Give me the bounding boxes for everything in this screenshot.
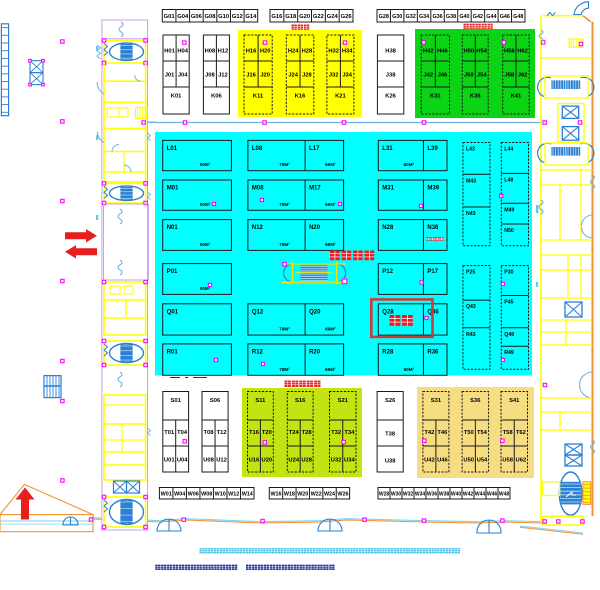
svg-text:W06: W06 (188, 491, 199, 497)
svg-text:R28: R28 (382, 349, 394, 355)
svg-text:W16: W16 (270, 491, 281, 497)
svg-text:M49: M49 (504, 207, 514, 213)
svg-text:H01: H01 (164, 49, 175, 55)
svg-text:U32: U32 (331, 458, 342, 464)
svg-text:G20: G20 (299, 14, 310, 20)
svg-text:T20: T20 (262, 430, 272, 436)
svg-text:M43: M43 (466, 178, 476, 184)
svg-text:J34: J34 (342, 73, 352, 79)
svg-text:U12: U12 (216, 458, 227, 464)
svg-text:N50: N50 (504, 228, 514, 234)
svg-text:T62: T62 (516, 430, 526, 436)
svg-text:L48: L48 (504, 177, 513, 183)
svg-text:K16: K16 (295, 94, 306, 100)
svg-text:T38: T38 (385, 432, 396, 438)
svg-text:J58: J58 (504, 73, 514, 79)
svg-text:U54: U54 (477, 458, 488, 464)
svg-text:W30: W30 (391, 491, 402, 497)
svg-text:W12: W12 (228, 491, 239, 497)
svg-text:L01: L01 (167, 146, 178, 152)
svg-text:U42: U42 (424, 458, 435, 464)
svg-text:U20: U20 (262, 458, 273, 464)
svg-text:J28: J28 (302, 73, 312, 79)
svg-text:G01: G01 (164, 14, 176, 20)
svg-text:P17: P17 (427, 269, 438, 275)
svg-text:H42: H42 (423, 49, 434, 55)
svg-text:W48: W48 (499, 491, 510, 497)
svg-text:P12: P12 (382, 269, 393, 275)
svg-text:T54: T54 (477, 430, 488, 436)
svg-text:G42: G42 (473, 14, 483, 20)
svg-text:H46: H46 (437, 49, 448, 55)
svg-text:H28: H28 (302, 49, 313, 55)
svg-text:L31: L31 (382, 146, 393, 152)
svg-text:G10: G10 (218, 14, 229, 20)
svg-text:W36: W36 (427, 491, 438, 497)
svg-text:U08: U08 (203, 458, 214, 464)
svg-text:N01: N01 (167, 225, 179, 231)
svg-text:T42: T42 (424, 430, 434, 436)
svg-text:J46: J46 (438, 73, 448, 79)
svg-text:T08: T08 (204, 430, 215, 436)
svg-text:G32: G32 (406, 14, 416, 20)
svg-text:90M²: 90M² (200, 162, 211, 167)
svg-text:T04: T04 (177, 430, 188, 436)
svg-text:S21: S21 (338, 398, 349, 404)
svg-text:R43: R43 (466, 332, 476, 338)
svg-text:H50: H50 (463, 49, 474, 55)
svg-text:J38: J38 (386, 73, 396, 79)
svg-text:U50: U50 (463, 458, 474, 464)
svg-text:T24: T24 (289, 430, 300, 436)
svg-text:H12: H12 (218, 49, 229, 55)
svg-text:U01: U01 (164, 458, 175, 464)
svg-text:G22: G22 (313, 14, 324, 20)
svg-text:W34: W34 (415, 491, 426, 497)
svg-text:J20: J20 (260, 73, 270, 79)
svg-text:78M²: 78M² (279, 327, 290, 332)
svg-text:S11: S11 (255, 398, 266, 404)
svg-text:W22: W22 (311, 491, 322, 497)
svg-text:H38: H38 (385, 49, 396, 55)
svg-text:L17: L17 (309, 146, 320, 152)
svg-text:J16: J16 (246, 73, 256, 79)
svg-text:78M²: 78M² (279, 367, 290, 372)
svg-text:J08: J08 (205, 73, 215, 79)
svg-text:J12: J12 (218, 73, 228, 79)
svg-text:U34: U34 (344, 458, 355, 464)
svg-text:J54: J54 (477, 73, 487, 79)
svg-text:R20: R20 (309, 349, 321, 355)
svg-text:G12: G12 (232, 14, 243, 20)
svg-text:J24: J24 (288, 73, 298, 79)
svg-text:W24: W24 (324, 491, 335, 497)
svg-text:M08: M08 (252, 186, 264, 192)
svg-text:W42: W42 (463, 491, 474, 497)
svg-text:R36: R36 (427, 349, 439, 355)
svg-text:G04: G04 (177, 14, 189, 20)
svg-text:K41: K41 (511, 94, 522, 100)
svg-text:G48: G48 (513, 14, 523, 20)
svg-text:L43: L43 (466, 147, 475, 153)
svg-text:J42: J42 (423, 73, 433, 79)
svg-text:J01: J01 (165, 73, 175, 79)
svg-text:R01: R01 (167, 349, 179, 355)
svg-text:H62: H62 (517, 49, 528, 55)
svg-text:T46: T46 (437, 430, 448, 436)
svg-text:K06: K06 (211, 94, 222, 100)
svg-text:W32: W32 (403, 491, 414, 497)
svg-text:K26: K26 (385, 94, 396, 100)
svg-text:78M²: 78M² (279, 242, 290, 247)
svg-text:78M²: 78M² (279, 162, 290, 167)
svg-text:U16: U16 (249, 458, 260, 464)
svg-text:W01: W01 (161, 491, 172, 497)
svg-text:Q28: Q28 (382, 309, 394, 315)
svg-text:N20: N20 (309, 225, 321, 231)
svg-text:N43: N43 (466, 211, 476, 217)
svg-text:G18: G18 (285, 14, 297, 20)
svg-text:W18: W18 (284, 491, 295, 497)
svg-text:J32: J32 (329, 73, 339, 79)
svg-text:H58: H58 (504, 49, 515, 55)
svg-text:S41: S41 (509, 398, 520, 404)
svg-text:W40: W40 (451, 491, 462, 497)
svg-text:G30: G30 (392, 14, 402, 20)
svg-text:W28: W28 (379, 491, 390, 497)
svg-text:N28: N28 (382, 225, 394, 231)
svg-text:H04: H04 (177, 49, 188, 55)
svg-text:W44: W44 (475, 491, 486, 497)
svg-text:Q49: Q49 (504, 332, 514, 338)
svg-text:W46: W46 (487, 491, 498, 497)
svg-text:Q01: Q01 (167, 309, 179, 315)
svg-text:M17: M17 (309, 186, 321, 192)
svg-text:68M²: 68M² (325, 242, 336, 247)
svg-text:G26: G26 (341, 14, 353, 20)
svg-text:K01: K01 (171, 94, 182, 100)
svg-text:P30: P30 (504, 270, 513, 276)
svg-text:S31: S31 (431, 398, 442, 404)
svg-text:S16: S16 (295, 398, 306, 404)
svg-text:N12: N12 (252, 225, 264, 231)
svg-text:69M²: 69M² (325, 202, 336, 207)
svg-text:W10: W10 (215, 491, 226, 497)
svg-text:G46: G46 (500, 14, 510, 20)
svg-text:60M²: 60M² (404, 367, 415, 372)
svg-text:T32: T32 (331, 430, 341, 436)
svg-text:K21: K21 (335, 94, 346, 100)
svg-text:S36: S36 (470, 398, 481, 404)
svg-text:G08: G08 (205, 14, 217, 20)
svg-text:L08: L08 (252, 146, 263, 152)
svg-text:J50: J50 (464, 73, 474, 79)
svg-text:90M²: 90M² (200, 202, 211, 207)
svg-text:W26: W26 (337, 491, 348, 497)
svg-text:G14: G14 (245, 14, 257, 20)
svg-text:R49: R49 (504, 350, 514, 356)
svg-text:69M²: 69M² (325, 367, 336, 372)
svg-text:T34: T34 (344, 430, 355, 436)
svg-text:G36: G36 (432, 14, 442, 20)
svg-text:Q12: Q12 (252, 309, 264, 315)
svg-text:P45: P45 (504, 300, 513, 306)
svg-text:W20: W20 (297, 491, 308, 497)
svg-text:S01: S01 (171, 398, 182, 404)
svg-text:T28: T28 (302, 430, 313, 436)
svg-text:Q20: Q20 (309, 309, 321, 315)
svg-text:W04: W04 (174, 491, 185, 497)
svg-text:60M²: 60M² (404, 162, 415, 167)
svg-text:T12: T12 (217, 430, 227, 436)
svg-text:T01: T01 (164, 430, 175, 436)
svg-text:69M²: 69M² (325, 162, 336, 167)
svg-text:L39: L39 (427, 146, 438, 152)
svg-text:K11: K11 (253, 94, 264, 100)
svg-text:U24: U24 (288, 458, 299, 464)
svg-text:L44: L44 (504, 147, 513, 153)
svg-text:H20: H20 (260, 49, 271, 55)
svg-text:M01: M01 (167, 186, 179, 192)
svg-text:G44: G44 (486, 14, 496, 20)
svg-text:W38: W38 (439, 491, 450, 497)
svg-text:G40: G40 (459, 14, 469, 20)
svg-text:G24: G24 (327, 14, 339, 20)
svg-text:U62: U62 (516, 458, 527, 464)
svg-text:K36: K36 (470, 94, 481, 100)
svg-text:G16: G16 (271, 14, 283, 20)
svg-text:T16: T16 (249, 430, 260, 436)
svg-text:G34: G34 (419, 14, 429, 20)
svg-text:J04: J04 (178, 73, 188, 79)
svg-text:W14: W14 (242, 491, 253, 497)
svg-text:G38: G38 (446, 14, 456, 20)
svg-text:P01: P01 (167, 269, 178, 275)
svg-text:G06: G06 (191, 14, 203, 20)
svg-text:S26: S26 (385, 398, 396, 404)
svg-text:W08: W08 (201, 491, 212, 497)
svg-text:H08: H08 (205, 49, 216, 55)
svg-text:H24: H24 (288, 49, 299, 55)
svg-text:U04: U04 (177, 458, 188, 464)
svg-text:P25: P25 (466, 270, 475, 276)
svg-text:90M²: 90M² (200, 242, 211, 247)
svg-text:U28: U28 (301, 458, 312, 464)
svg-text:T50: T50 (464, 430, 474, 436)
svg-text:N36: N36 (427, 225, 439, 231)
svg-text:R12: R12 (252, 349, 264, 355)
svg-text:H32: H32 (328, 49, 339, 55)
svg-text:U46: U46 (437, 458, 448, 464)
svg-text:G28: G28 (379, 14, 389, 20)
svg-text:Q43: Q43 (466, 304, 476, 310)
svg-text:U38: U38 (385, 459, 396, 465)
svg-text:69M²: 69M² (325, 327, 336, 332)
svg-text:M31: M31 (382, 186, 394, 192)
svg-text:S06: S06 (210, 398, 221, 404)
svg-text:M39: M39 (427, 186, 439, 192)
svg-text:J62: J62 (518, 73, 528, 79)
svg-text:H54: H54 (476, 49, 487, 55)
svg-text:U58: U58 (502, 458, 513, 464)
svg-text:H34: H34 (342, 49, 353, 55)
svg-text:T58: T58 (503, 430, 514, 436)
svg-text:H16: H16 (246, 49, 257, 55)
svg-text:K31: K31 (430, 94, 441, 100)
svg-text:78M²: 78M² (279, 202, 290, 207)
